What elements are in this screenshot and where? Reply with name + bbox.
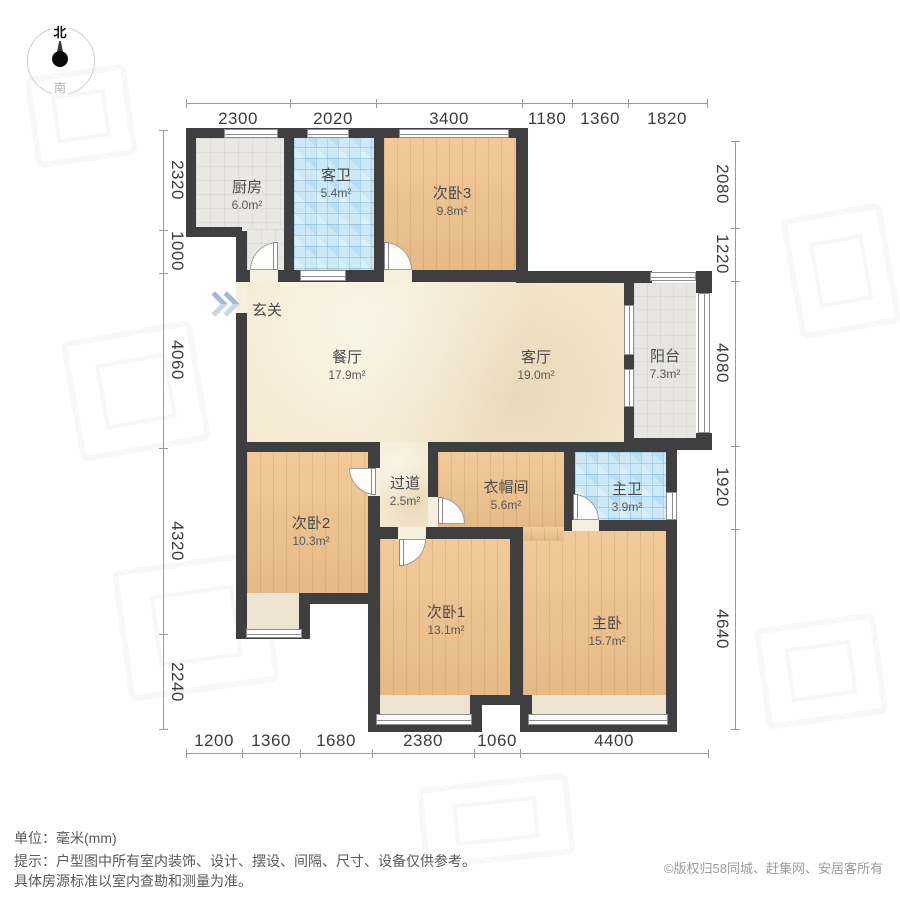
room-name: 主卧 <box>588 614 625 634</box>
dim-label: 4080 <box>712 343 732 383</box>
footer-copyright: ©版权归58同城、赶集网、安居客所有 <box>664 858 883 877</box>
dim-label: 2300 <box>218 109 258 129</box>
room-name: 厨房 <box>232 178 263 198</box>
tick <box>731 281 740 282</box>
room-area: 2.5m² <box>390 494 421 510</box>
room-floor-master-bedroom <box>523 531 666 695</box>
tick <box>731 141 740 142</box>
room-area: 5.6m² <box>483 498 528 514</box>
dim-label: 4320 <box>167 521 187 561</box>
room-label-bedroom3: 次卧3 9.8m² <box>433 184 471 219</box>
window <box>376 714 472 725</box>
tick <box>159 729 168 730</box>
room-area: 7.3m² <box>650 367 681 383</box>
room-name: 衣帽间 <box>483 478 528 498</box>
tick <box>731 228 740 229</box>
room-area: 5.4m² <box>321 186 352 202</box>
dim-label: 2080 <box>712 164 732 204</box>
tick <box>300 749 301 758</box>
window <box>698 293 710 433</box>
window <box>528 714 668 725</box>
room-label-dining: 餐厅 17.9m² <box>328 348 365 383</box>
tick <box>628 99 629 108</box>
sliding-door <box>300 270 346 281</box>
wall <box>624 438 712 450</box>
tick <box>572 99 573 108</box>
room-label-master-bath: 主卫 3.9m² <box>612 480 643 515</box>
floorplan-page: 北 南 <box>0 0 900 900</box>
room-area: 13.1m² <box>427 623 465 639</box>
dim-label: 1820 <box>647 109 687 129</box>
tick <box>522 99 523 108</box>
door-leaf <box>273 242 278 270</box>
room-label-hallway: 过道 2.5m² <box>390 474 421 509</box>
dim-label: 1680 <box>316 731 356 751</box>
wall <box>624 407 634 440</box>
entry-door-opening <box>236 282 247 313</box>
room-area: 3.9m² <box>612 500 643 516</box>
dimension-line-left <box>163 130 164 730</box>
dim-label: 1200 <box>194 731 234 751</box>
dim-label: 1000 <box>167 231 187 271</box>
room-name: 阳台 <box>650 347 681 367</box>
dim-label: 1060 <box>477 731 517 751</box>
room-floor-guest-bath <box>294 136 374 270</box>
tick <box>159 273 168 274</box>
wall <box>624 281 634 305</box>
dimension-line-right <box>735 141 736 730</box>
tick <box>290 99 291 108</box>
footer-unit-note: 单位：毫米(mm) <box>14 828 117 848</box>
tick <box>376 99 377 108</box>
wall <box>516 128 528 283</box>
tick <box>186 99 187 108</box>
balcony-sliding-door <box>624 305 634 355</box>
door-opening <box>398 527 426 539</box>
dim-label: 1920 <box>712 467 732 507</box>
room-floor-master-passage <box>518 527 564 541</box>
wall <box>428 452 438 497</box>
balcony-sliding-door <box>624 369 634 407</box>
dim-label: 2240 <box>167 662 187 702</box>
wall <box>186 227 242 237</box>
wall <box>516 271 628 283</box>
door-leaf <box>399 539 404 566</box>
window <box>307 129 349 138</box>
dimension-line-bottom <box>186 753 709 754</box>
tick <box>731 729 740 730</box>
tick <box>242 749 243 758</box>
dim-label: 1360 <box>251 731 291 751</box>
tick <box>708 749 709 758</box>
room-area: 17.9m² <box>328 368 365 384</box>
dim-label: 1180 <box>528 109 567 129</box>
wall <box>624 355 634 369</box>
room-name: 主卫 <box>612 480 643 500</box>
tick <box>372 749 373 758</box>
bay-window-bedroom1 <box>380 695 470 716</box>
dim-label: 2380 <box>403 731 443 751</box>
compass-dot-icon <box>52 51 68 67</box>
dim-label: 3400 <box>429 109 469 129</box>
wall <box>186 128 196 237</box>
window <box>224 129 278 138</box>
bay-window-master <box>523 695 666 716</box>
room-label-guest-bath: 客卫 5.4m² <box>321 166 352 201</box>
room-label-bedroom2: 次卧2 10.3m² <box>292 514 330 549</box>
wall <box>247 442 380 452</box>
tick <box>520 749 521 758</box>
wall <box>564 520 572 531</box>
dim-label: 4060 <box>167 340 187 380</box>
room-name: 过道 <box>390 474 421 494</box>
room-area: 9.8m² <box>433 204 471 220</box>
wall <box>368 527 398 539</box>
room-name: 餐厅 <box>328 348 365 368</box>
tick <box>186 749 187 758</box>
dim-label: 4640 <box>712 609 732 649</box>
door-opening <box>428 497 438 527</box>
room-name: 客厅 <box>517 348 554 368</box>
wall <box>437 527 518 539</box>
tick <box>159 448 168 449</box>
watermark <box>780 202 900 340</box>
room-name: 次卧1 <box>427 603 465 623</box>
door-leaf <box>384 242 389 270</box>
window <box>246 629 302 638</box>
tick <box>159 130 168 131</box>
dim-label: 1220 <box>712 234 732 274</box>
room-area: 15.7m² <box>588 634 625 650</box>
room-label-bedroom1: 次卧1 13.1m² <box>427 603 465 638</box>
door-opening <box>572 520 599 531</box>
room-area: 19.0m² <box>517 368 554 384</box>
tick <box>731 446 740 447</box>
wall <box>236 313 247 639</box>
room-area: 6.0m² <box>232 198 263 214</box>
window <box>399 129 509 138</box>
bay-window-bedroom2 <box>247 593 299 629</box>
entry-label: 玄关 <box>252 299 282 320</box>
door-leaf <box>573 494 578 520</box>
wall <box>284 136 294 280</box>
wall <box>299 593 369 604</box>
room-area: 10.3m² <box>292 534 330 550</box>
room-name: 次卧2 <box>292 514 330 534</box>
dim-label: 1360 <box>580 109 620 129</box>
room-name: 客卫 <box>321 166 352 186</box>
dim-label: 2320 <box>167 160 187 200</box>
footer-tip-line1: 提示：户型图中所有室内装饰、设计、摆设、间隔、尺寸、设备仅供参考。 <box>14 851 476 871</box>
door-opening <box>250 270 278 282</box>
room-label-balcony: 阳台 7.3m² <box>650 347 681 382</box>
room-floor-living-dining <box>247 282 624 442</box>
dim-label: 4400 <box>594 731 634 751</box>
compass-north-label: 北 <box>51 22 68 41</box>
door-leaf <box>371 468 376 495</box>
compass-south-label: 南 <box>52 79 68 96</box>
tick <box>731 529 740 530</box>
tick <box>159 634 168 635</box>
wall <box>374 136 384 280</box>
door-opening <box>384 270 412 282</box>
tick <box>474 749 475 758</box>
room-label-master-bedroom: 主卧 15.7m² <box>588 614 625 649</box>
door-leaf <box>438 497 443 524</box>
window <box>650 272 696 281</box>
wall <box>510 527 523 697</box>
watermark <box>60 319 211 462</box>
footer-tip-line2: 具体房源标准以室内查勘和测量为准。 <box>14 871 252 891</box>
room-label-living: 客厅 19.0m² <box>517 348 554 383</box>
room-name: 次卧3 <box>433 184 471 204</box>
tick <box>707 99 708 108</box>
wall <box>236 270 528 282</box>
window <box>666 492 677 520</box>
dim-label: 2020 <box>313 109 353 129</box>
wall <box>696 271 712 293</box>
room-label-cloakroom: 衣帽间 5.6m² <box>483 478 528 513</box>
watermark <box>753 612 888 730</box>
room-label-kitchen: 厨房 6.0m² <box>232 178 263 213</box>
